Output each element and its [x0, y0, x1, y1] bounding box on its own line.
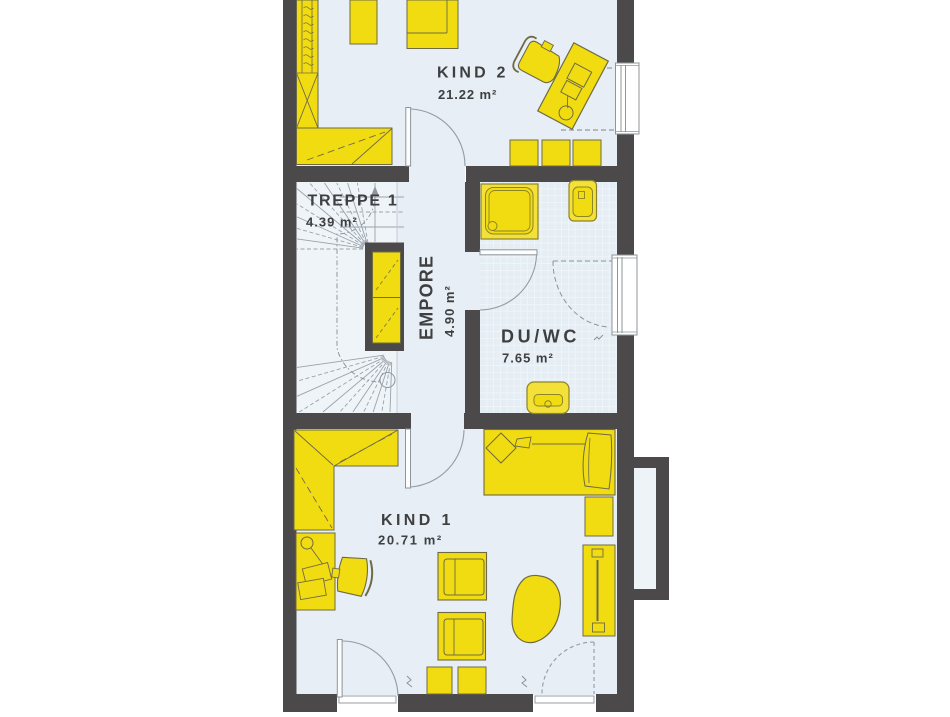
svg-text:4.90 m²: 4.90 m² [442, 285, 457, 337]
svg-text:KIND 2: KIND 2 [437, 65, 509, 82]
svg-text:21.22 m²: 21.22 m² [438, 87, 497, 102]
svg-text:4.39 m²: 4.39 m² [306, 215, 358, 230]
svg-text:EMPORE: EMPORE [417, 255, 437, 340]
svg-text:TREPPE 1: TREPPE 1 [308, 193, 399, 210]
svg-text:DU/WC: DU/WC [501, 327, 580, 347]
svg-text:7.65 m²: 7.65 m² [502, 351, 554, 366]
svg-text:KIND 1: KIND 1 [381, 512, 454, 529]
svg-text:20.71 m²: 20.71 m² [378, 533, 443, 548]
